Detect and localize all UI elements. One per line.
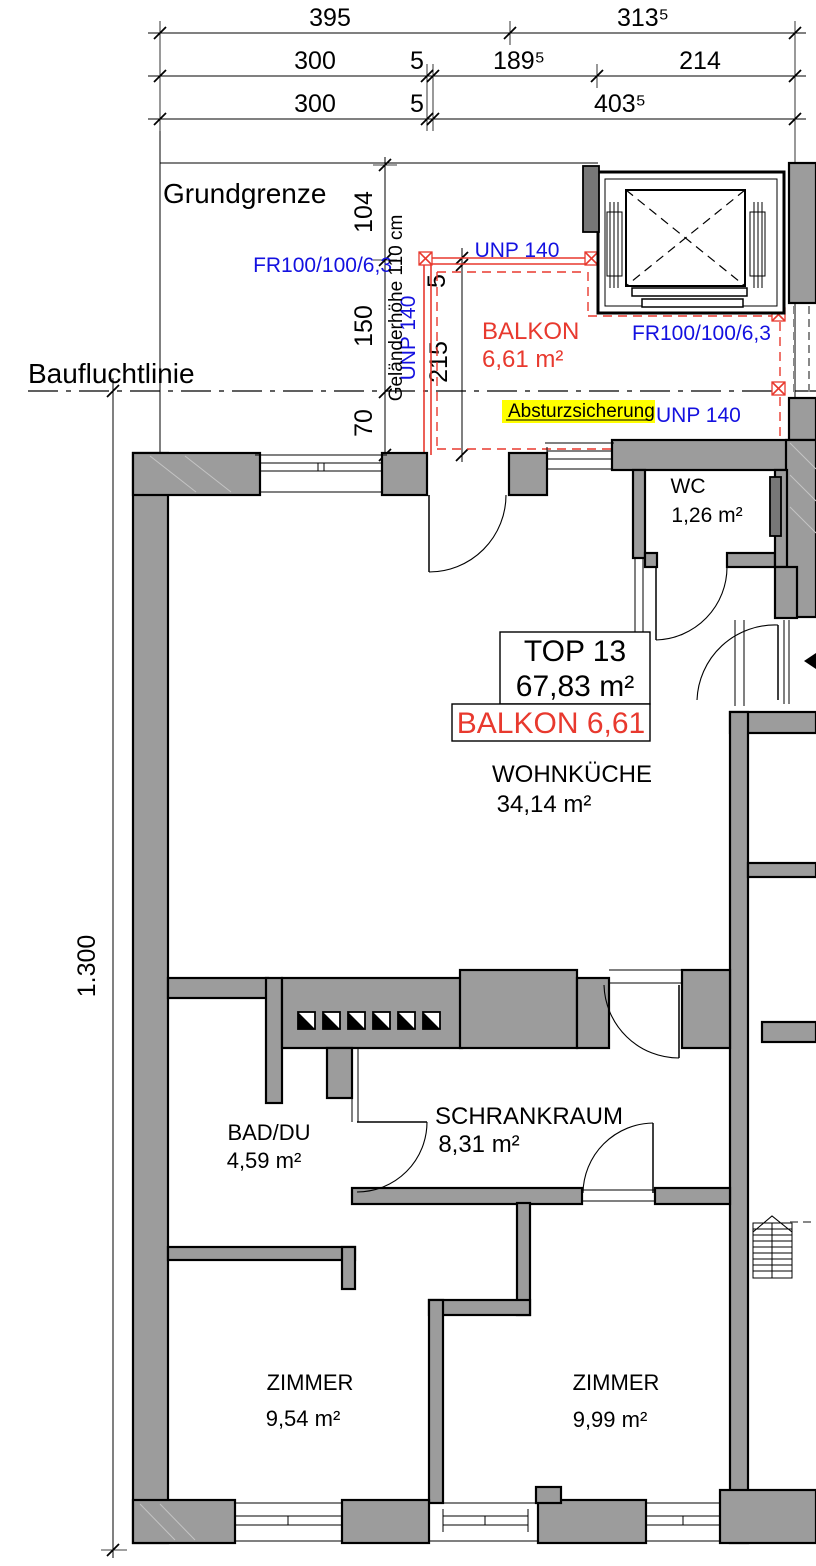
railing-post xyxy=(585,252,598,265)
balcony-area: 6,61 m² xyxy=(482,346,563,373)
room-name-zimmer-left: ZIMMER xyxy=(267,1370,354,1395)
opening-marker xyxy=(298,1012,315,1029)
doors xyxy=(352,495,789,1201)
room-area-bad: 4,59 m² xyxy=(227,1148,302,1173)
opening-marker xyxy=(323,1012,340,1029)
door-stair-hall xyxy=(697,620,789,706)
baufluchtlinie-label: Baufluchtlinie xyxy=(28,358,195,389)
unit-area: 67,83 m² xyxy=(516,670,634,703)
elevator-door-sill xyxy=(632,288,747,296)
door-balcony xyxy=(429,495,506,572)
guard-highlight: Absturzsicherung xyxy=(502,400,655,423)
railing-post xyxy=(419,252,432,265)
dim-label: 1.300 xyxy=(73,935,101,998)
dim-label: 189⁵ xyxy=(493,47,545,75)
dim-label: 214 xyxy=(679,47,721,75)
opening-marker xyxy=(373,1012,390,1029)
room-name-zimmer-right: ZIMMER xyxy=(573,1370,660,1395)
dimension-rows: 395 313⁵ 300 5 189⁵ 214 300 5 403⁵ xyxy=(148,4,806,163)
dim-label: 5 xyxy=(410,90,424,118)
wall-east-spine xyxy=(730,712,748,1543)
section-arrow xyxy=(804,653,816,669)
door-bad xyxy=(352,1048,427,1192)
opening-marker xyxy=(348,1012,365,1029)
fr-right-label: FR100/100/6,3 xyxy=(632,322,771,345)
window xyxy=(443,1509,528,1532)
walls xyxy=(133,440,816,1543)
room-area-wc: 1,26 m² xyxy=(671,504,742,527)
dim-label: 104 xyxy=(350,191,378,233)
door-wc xyxy=(656,567,727,640)
window xyxy=(235,1509,342,1532)
railing-height-note: Geländerhöhe 110 cm xyxy=(386,215,407,402)
guard-label: Absturzsicherung xyxy=(508,401,655,422)
elevator-door-sill xyxy=(642,299,743,307)
dim-label: 300 xyxy=(294,90,336,118)
facade-notch xyxy=(536,1487,561,1503)
wc-shaft-window xyxy=(770,477,781,536)
shaft-pier xyxy=(583,166,599,232)
window xyxy=(646,1509,720,1532)
doorway-corridor xyxy=(635,557,643,642)
unit-id: TOP 13 xyxy=(524,635,626,668)
dim-label: 215 xyxy=(425,341,453,383)
unit-balcony-line: BALKON 6,61 xyxy=(457,707,645,740)
room-area-zimmer-left: 9,54 m² xyxy=(266,1406,341,1431)
room-name-bad: BAD/DU xyxy=(227,1120,310,1145)
unp-top-label: UNP 140 xyxy=(475,239,560,262)
dim-label: 313⁵ xyxy=(617,4,669,32)
grundgrenze-label: Grundgrenze xyxy=(163,178,326,209)
opening-marker xyxy=(398,1012,415,1029)
wall-exterior-left xyxy=(133,453,168,1543)
window xyxy=(255,455,387,492)
room-area-schrankraum: 8,31 m² xyxy=(438,1131,519,1158)
room-labels: WC 1,26 m² WOHNKÜCHE 34,14 m² BAD/DU 4,5… xyxy=(227,475,743,1432)
staircase xyxy=(753,1216,816,1278)
dim-label: 403⁵ xyxy=(594,90,646,118)
dim-label: 5 xyxy=(410,47,424,75)
balcony-name: BALKON xyxy=(482,318,579,345)
dim-label: 70 xyxy=(350,409,378,437)
unp-bottom-label: UNP 140 xyxy=(656,404,741,427)
room-name-schrankraum: SCHRANKRAUM xyxy=(435,1103,623,1130)
unit-annotation: TOP 13 67,83 m² BALKON 6,61 xyxy=(452,632,650,741)
door-zimmer-right xyxy=(582,1123,655,1201)
opening-marker xyxy=(423,1012,440,1029)
dim-label: 300 xyxy=(294,47,336,75)
room-name-wohnkueche: WOHNKÜCHE xyxy=(492,761,652,788)
dim-label: 150 xyxy=(350,305,378,347)
window xyxy=(545,443,614,469)
door-schrankraum xyxy=(604,970,682,1058)
room-name-wc: WC xyxy=(671,475,706,498)
room-area-zimmer-right: 9,99 m² xyxy=(573,1407,648,1432)
floorplan-canvas: 395 313⁵ 300 5 189⁵ 214 300 5 403⁵ Grund… xyxy=(0,0,816,1566)
dim-label: 395 xyxy=(309,4,351,32)
fr-left-label: FR100/100/6,3 xyxy=(253,254,392,277)
railing-post xyxy=(772,382,785,395)
room-area-wohnkueche: 34,14 m² xyxy=(497,791,592,818)
